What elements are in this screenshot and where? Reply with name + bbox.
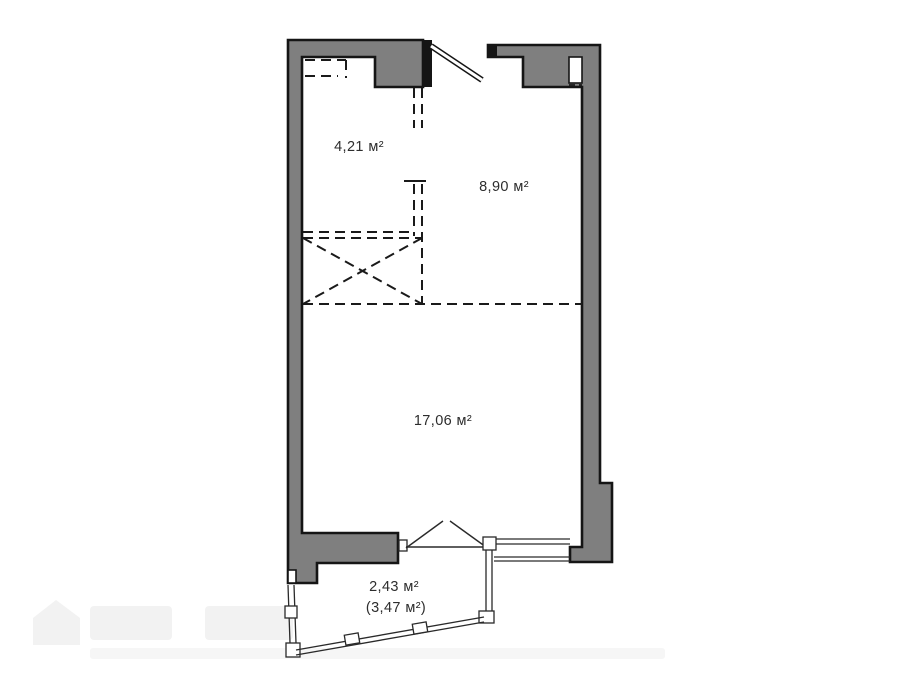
floor-plan-canvas: 4,21 м² 8,90 м² 17,06 м² 2,43 м² (3,47 м… [0, 0, 900, 700]
watermark-logo [33, 600, 665, 659]
room-area-label-balcony-total: (3,47 м²) [366, 600, 426, 616]
room-area-label-living: 17,06 м² [414, 413, 472, 429]
room-area-label-kitchen: 8,90 м² [479, 179, 529, 195]
room-area-label-balcony: 2,43 м² [369, 579, 419, 595]
dashed-fixtures [303, 60, 426, 303]
watermark-text [90, 648, 665, 659]
room-area-label-hall: 4,21 м² [334, 139, 384, 155]
balcony-door [399, 521, 486, 551]
wall-notch-left [288, 570, 296, 583]
dashed-wardrobe-x [303, 238, 582, 304]
door-jamb-right [488, 45, 497, 57]
door-leaf-right [450, 521, 486, 547]
walls-left [288, 40, 432, 583]
vent-shaft [569, 57, 582, 83]
entrance-door [431, 46, 482, 80]
door-leaf-left [406, 521, 443, 548]
window-strip [494, 539, 570, 561]
floor-plan-drawing [0, 0, 900, 700]
